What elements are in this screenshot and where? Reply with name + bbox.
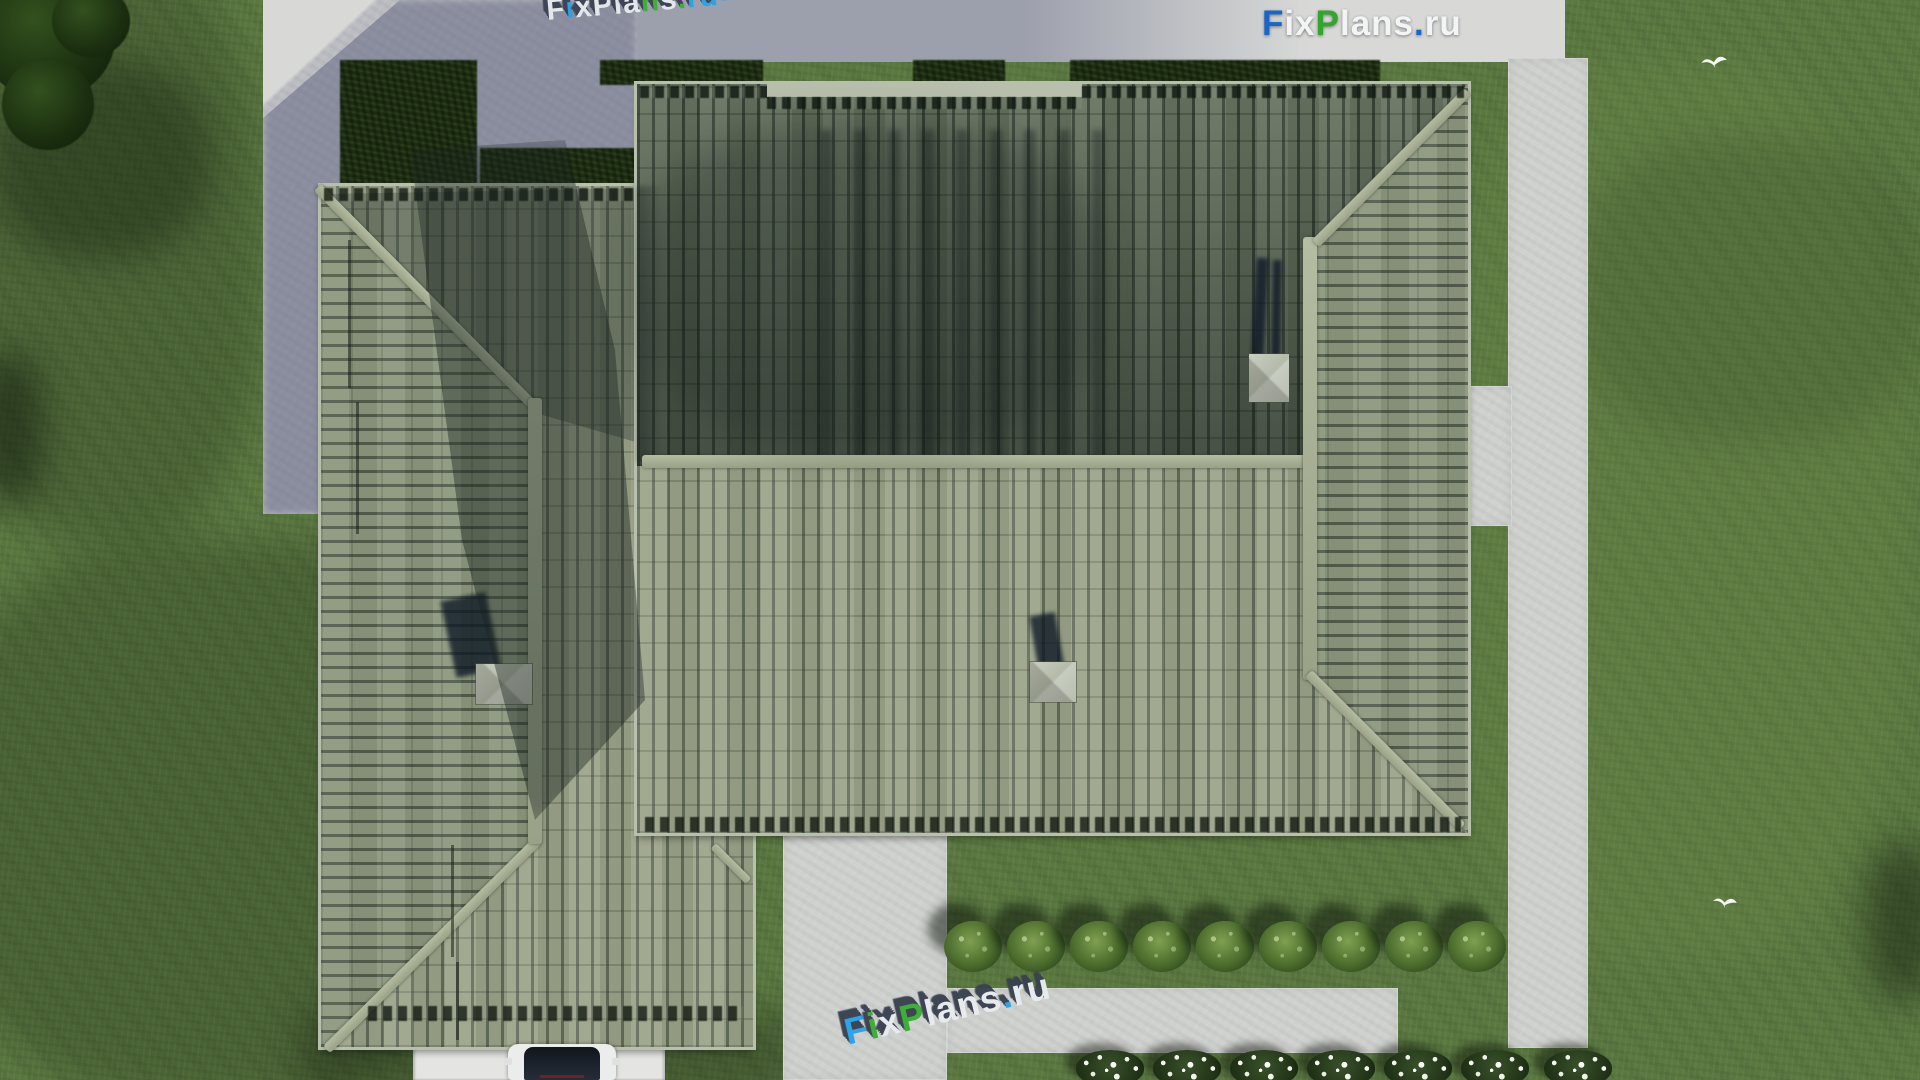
fixplans-logo: FixPlans.ru bbox=[1262, 4, 1462, 44]
east-ridge bbox=[1303, 237, 1317, 680]
edge-tree-shadow bbox=[1866, 842, 1920, 1002]
right-path-widening bbox=[1468, 386, 1512, 526]
main-top-eave-caps bbox=[1082, 86, 1464, 98]
car-taillight bbox=[540, 1075, 584, 1078]
logo-letter: i bbox=[1284, 4, 1295, 43]
logo-letter: F bbox=[1262, 4, 1284, 43]
white-flower-bush bbox=[1153, 1050, 1221, 1080]
roof-vent-shadow bbox=[356, 402, 359, 534]
white-flower-bush bbox=[1461, 1050, 1529, 1080]
tree bbox=[2, 58, 94, 150]
left-wing-bottom-eave-caps bbox=[368, 1006, 743, 1021]
green-bush bbox=[1259, 921, 1317, 972]
watermark-letter: a bbox=[621, 0, 642, 21]
car bbox=[508, 1042, 616, 1080]
white-flower-bush bbox=[1307, 1050, 1375, 1080]
logo-letter: r bbox=[1425, 4, 1440, 43]
lawn-dark-patch bbox=[1580, 140, 1920, 440]
green-bush bbox=[1070, 921, 1128, 972]
main-top-eave-caps bbox=[767, 97, 1082, 109]
top-eave-step bbox=[767, 84, 1082, 97]
chimney-skylight bbox=[1030, 662, 1076, 702]
hedge-strip bbox=[600, 60, 763, 85]
logo-letter: a bbox=[1351, 4, 1371, 43]
aerial-house-render: FixPlans.ru FixPlans.ru FixPlans.ru bbox=[0, 0, 1920, 1080]
watermark-blue-block bbox=[720, 0, 746, 1]
green-bush bbox=[944, 921, 1002, 972]
main-bottom-eave-caps bbox=[645, 817, 1461, 832]
green-bush bbox=[1196, 921, 1254, 972]
main-top-eave-caps bbox=[640, 86, 770, 98]
logo-letter: . bbox=[1414, 4, 1425, 43]
watermark-letter: s bbox=[658, 0, 679, 18]
roof-vent-shadow bbox=[456, 962, 459, 1040]
chimney-skylight bbox=[1249, 354, 1289, 402]
car-mirror bbox=[612, 1058, 620, 1065]
green-bush bbox=[1448, 921, 1506, 972]
roof-vent-shadow bbox=[451, 845, 454, 957]
white-flower-bush bbox=[1544, 1050, 1612, 1080]
hedge-strip bbox=[1070, 60, 1380, 85]
logo-letter: P bbox=[1316, 4, 1340, 43]
main-ridge bbox=[642, 455, 1315, 468]
white-flower-bush bbox=[1230, 1050, 1298, 1080]
green-bush bbox=[1007, 921, 1065, 972]
car-mirror bbox=[504, 1058, 512, 1065]
chimney-shadow bbox=[1271, 260, 1282, 360]
green-bush bbox=[1322, 921, 1380, 972]
logo-letter: u bbox=[1439, 4, 1461, 43]
roof-vent-shadow bbox=[348, 240, 351, 388]
bird-icon bbox=[1700, 52, 1728, 70]
logo-letter: l bbox=[1340, 4, 1351, 43]
watermark-letter: u bbox=[698, 0, 720, 14]
right-path bbox=[1508, 58, 1588, 1048]
logo-letter: s bbox=[1394, 4, 1414, 43]
logo-letter: n bbox=[1371, 4, 1393, 43]
green-bush bbox=[1133, 921, 1191, 972]
watermark-letter: n bbox=[639, 0, 661, 20]
white-flower-bush bbox=[1076, 1050, 1144, 1080]
white-flower-bush bbox=[1384, 1050, 1452, 1080]
north-slope-soft-shadow bbox=[640, 120, 1100, 450]
watermark-letter: F bbox=[545, 0, 567, 28]
hedge-strip bbox=[913, 60, 1005, 85]
logo-letter: x bbox=[1295, 4, 1315, 43]
green-bush bbox=[1385, 921, 1443, 972]
watermark-letter: P bbox=[591, 0, 615, 24]
